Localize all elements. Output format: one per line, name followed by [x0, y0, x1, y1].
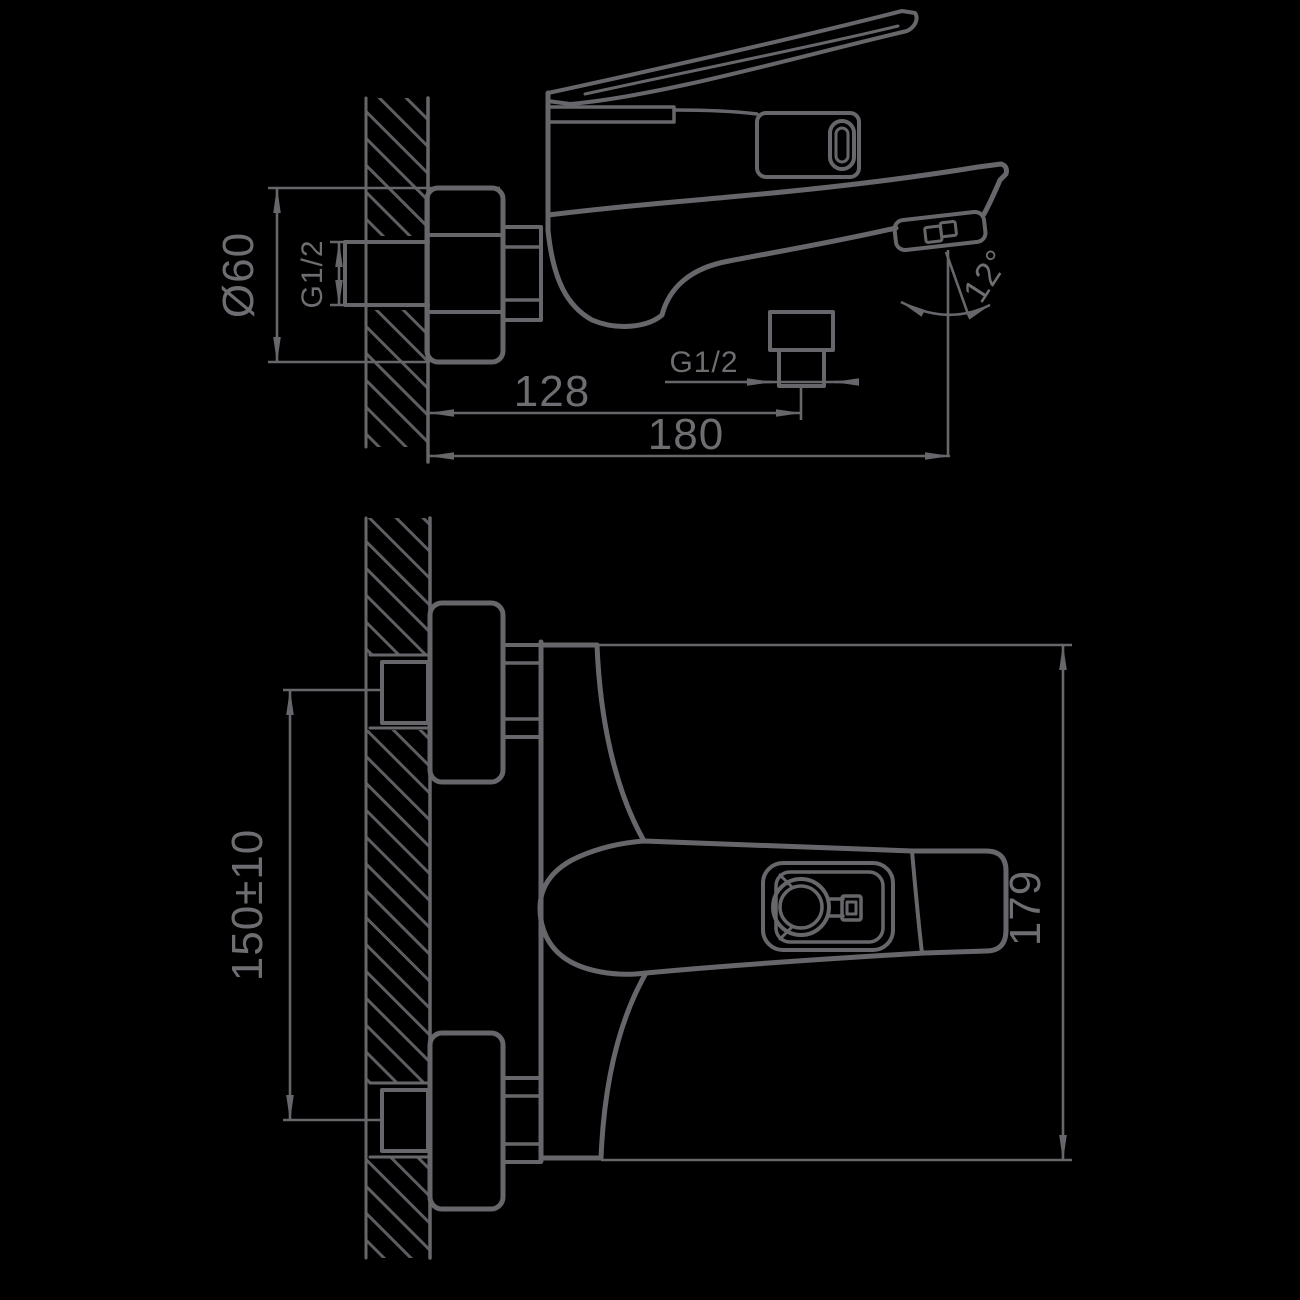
faucet-body-plan	[541, 642, 646, 1161]
escutcheon-diameter-dimension: Ø60	[214, 188, 500, 362]
spray-angle-label: 12°	[956, 243, 1018, 309]
spout-side	[548, 164, 1006, 315]
inlet-pipe	[345, 235, 503, 312]
wall-to-shower-outlet-label: 128	[514, 367, 590, 416]
escutcheon-side	[427, 188, 503, 362]
wall-to-spout-dimension: 180	[429, 410, 950, 459]
inlet-spacing-label: 150±10	[223, 829, 272, 982]
body-length-dimension: 179	[597, 645, 1072, 1160]
cartridge-cap-detail	[763, 863, 893, 950]
plan-view: 179 150±10	[223, 518, 1072, 1258]
wall-section-plan	[366, 518, 430, 1258]
technical-drawing-canvas: 12° Ø60 G1/2 G1/2 128	[0, 0, 1300, 1300]
aerator-housing	[894, 211, 987, 251]
inlet-thread-label: G1/2	[296, 239, 329, 308]
wall-section-side	[366, 98, 428, 462]
lever-handle-side	[548, 11, 917, 104]
wall-to-shower-outlet-dimension: 128	[429, 367, 801, 420]
diverter-detail	[757, 113, 859, 177]
escutcheon-diameter-label: Ø60	[214, 232, 263, 318]
faucet-technical-drawing: 12° Ø60 G1/2 G1/2 128	[0, 0, 1300, 1300]
inlet-spacing-dimension: 150±10	[223, 690, 382, 1120]
shower-outlet-stub	[770, 312, 833, 386]
side-view: 12° Ø60 G1/2 G1/2 128	[214, 11, 1018, 462]
shower-thread-label: G1/2	[669, 346, 738, 379]
wall-to-spout-label: 180	[648, 410, 724, 459]
union-nut-side	[503, 227, 541, 320]
body-length-label: 179	[1001, 870, 1050, 946]
spray-angle-annotation: 12°	[901, 243, 1018, 456]
